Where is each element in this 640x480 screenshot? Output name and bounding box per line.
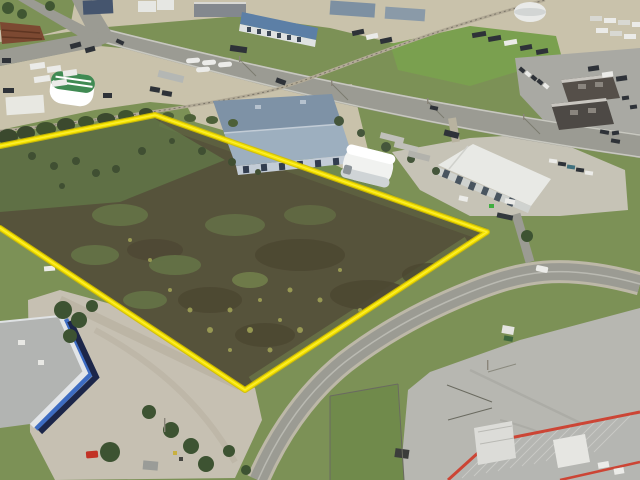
vehicle <box>3 88 14 93</box>
grey-building-parapet <box>194 2 246 4</box>
roof-unit <box>18 340 25 345</box>
yard-driveway <box>452 118 456 142</box>
aerial-photo <box>0 0 640 480</box>
white-dome-shading <box>514 8 546 16</box>
navy-roof-building <box>83 0 114 15</box>
vehicle <box>86 450 99 458</box>
white-building-a <box>138 1 156 12</box>
white-flat-shed <box>5 95 44 116</box>
roof-vent-2 <box>300 100 306 104</box>
white-roof-section <box>553 434 590 468</box>
loading-ramp <box>474 421 516 465</box>
aerial-photo-canvas <box>0 0 640 480</box>
fenced-yard <box>330 384 404 480</box>
vehicle <box>489 204 494 208</box>
vehicle <box>179 457 183 461</box>
vehicle <box>2 58 11 63</box>
grey-container <box>143 460 159 470</box>
vehicle <box>173 451 177 455</box>
white-building-b <box>157 0 174 10</box>
vehicle <box>103 93 112 98</box>
roof-vent <box>255 105 261 109</box>
roof-unit-2 <box>38 360 44 365</box>
grey-flat-building <box>194 2 246 17</box>
